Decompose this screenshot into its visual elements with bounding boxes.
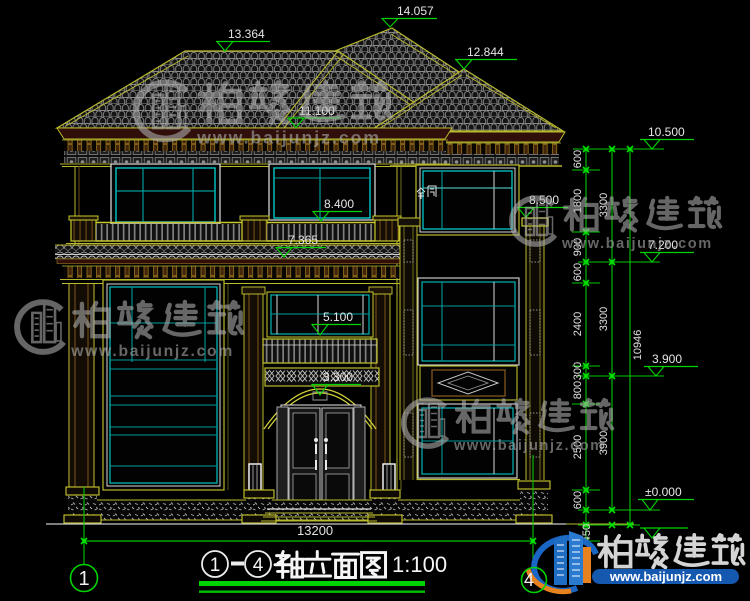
svg-text:4: 4 <box>253 555 264 576</box>
svg-text:600: 600 <box>572 150 584 168</box>
svg-text:12.844: 12.844 <box>467 45 504 59</box>
svg-text:1:100: 1:100 <box>392 552 447 577</box>
svg-text:7.365: 7.365 <box>288 233 318 247</box>
svg-text:3.900: 3.900 <box>652 352 682 366</box>
svg-text:10946: 10946 <box>632 330 644 361</box>
svg-text:3300: 3300 <box>598 307 610 331</box>
svg-text:5.100: 5.100 <box>323 310 353 324</box>
svg-text:13.364: 13.364 <box>228 27 265 41</box>
svg-text:600: 600 <box>572 491 584 509</box>
svg-text:www.baijunjz.com: www.baijunjz.com <box>609 569 722 584</box>
svg-text:13200: 13200 <box>297 523 333 538</box>
svg-text:1: 1 <box>210 555 221 576</box>
svg-text:10.500: 10.500 <box>648 125 685 139</box>
svg-text:14.057: 14.057 <box>397 4 434 18</box>
svg-text:8.400: 8.400 <box>324 197 354 211</box>
svg-text:4: 4 <box>524 570 534 590</box>
svg-text:300: 300 <box>572 362 584 380</box>
svg-text:3.300: 3.300 <box>323 370 353 384</box>
svg-text:1: 1 <box>78 568 89 590</box>
svg-text:2400: 2400 <box>572 312 584 336</box>
svg-text:±0.000: ±0.000 <box>645 485 682 499</box>
svg-text:800: 800 <box>572 381 584 399</box>
svg-text:600: 600 <box>572 263 584 281</box>
